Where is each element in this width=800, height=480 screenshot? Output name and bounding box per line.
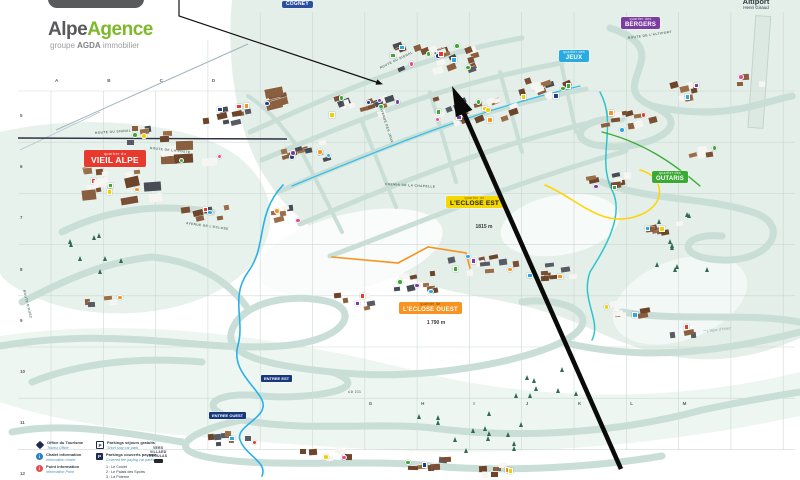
district-prefix: quartier des <box>625 18 656 22</box>
building <box>429 271 435 277</box>
building <box>127 140 134 145</box>
tree-icon <box>98 269 102 274</box>
tourist-office-icon <box>36 441 44 449</box>
legend-en: Short stay car park <box>107 446 155 450</box>
poi-marker <box>619 127 625 133</box>
district-label-cogney: COGNEY <box>282 1 313 8</box>
poi-marker <box>399 45 405 51</box>
tree-icon <box>486 436 490 441</box>
poi-marker <box>422 462 428 468</box>
building <box>484 269 494 274</box>
poi-marker <box>612 185 618 191</box>
building <box>491 472 498 477</box>
poi-marker <box>426 51 432 57</box>
poi-marker <box>323 454 329 460</box>
poi-marker <box>456 115 462 121</box>
tree-icon <box>525 375 529 380</box>
grid-number: 12 <box>20 471 25 476</box>
poi-marker <box>395 99 401 105</box>
building <box>482 472 488 478</box>
poi-marker <box>436 109 442 115</box>
tree-icon <box>97 233 101 238</box>
building <box>621 110 627 115</box>
tree-icon <box>103 256 107 261</box>
grid-number: 9 <box>20 318 23 323</box>
poi-marker <box>465 254 471 260</box>
altiport-subname: Henri Giraud <box>726 6 786 11</box>
tree-icon <box>453 437 457 442</box>
building <box>399 273 409 278</box>
parking-open-icon: P <box>96 441 104 449</box>
building <box>83 167 92 174</box>
tree-icon <box>119 258 123 263</box>
building <box>244 108 251 114</box>
poi-marker <box>203 207 209 213</box>
grid-number: 8 <box>20 267 23 272</box>
district-prefix: quartier du <box>91 152 139 156</box>
poi-marker <box>527 273 533 279</box>
building <box>561 266 570 273</box>
district-label-eclose-ouest: quartier de L'ECLOSE OUEST <box>399 302 462 314</box>
tree-icon <box>512 446 516 451</box>
tree-icon <box>512 441 516 446</box>
map-legend-parkings: P Parkings séjours gratuits Short stay c… <box>96 441 157 480</box>
tree-icon <box>574 391 578 396</box>
building <box>202 118 209 125</box>
legend-en: Covered fee paying car parks <box>106 458 157 462</box>
poi-marker <box>217 107 223 113</box>
district-label-vieil-alpe: quartier du VIEIL ALPE <box>84 150 146 167</box>
poi-marker <box>355 301 361 307</box>
poi-marker <box>566 83 572 89</box>
district-prefix: quartier de <box>403 303 458 307</box>
building <box>300 449 306 455</box>
grid-letter: L <box>630 401 633 406</box>
brand-name-part1: Alpe <box>48 19 87 40</box>
poi-marker <box>521 94 527 100</box>
building <box>160 136 169 143</box>
poi-marker <box>641 112 647 118</box>
poi-marker <box>659 226 665 232</box>
building <box>610 117 619 122</box>
poi-marker <box>553 93 559 99</box>
brand-tagline-post: immobilier <box>101 41 140 50</box>
poi-marker <box>593 184 599 190</box>
building <box>431 464 440 470</box>
poi-marker <box>397 279 403 285</box>
poi-marker <box>134 187 140 193</box>
info-chalet-icon: i <box>36 453 43 460</box>
district-name: BERGERS <box>625 22 656 28</box>
brand-logo: AlpeAgence <box>48 19 153 41</box>
legend-item-covered-parking: P Parkings couverts payants Covered fee … <box>96 453 157 462</box>
label-entree-est: ENTREE EST <box>261 375 292 382</box>
poi-marker <box>107 189 113 195</box>
building <box>82 190 97 201</box>
poi-marker <box>685 94 691 100</box>
brand-box <box>48 0 144 8</box>
poi-marker <box>485 107 491 113</box>
poi-marker <box>317 149 323 155</box>
district-label-jeux: quartier des JEUX <box>559 50 589 62</box>
district-label-outaris: quartier des OUTARIS <box>652 171 688 183</box>
building <box>670 332 676 339</box>
building <box>214 434 222 440</box>
poi-marker <box>244 103 250 109</box>
building <box>759 82 765 87</box>
tree-icon <box>483 426 487 431</box>
district-prefix: quartier des <box>563 51 585 55</box>
grid-letter: M <box>683 401 687 406</box>
poi-marker <box>738 74 744 80</box>
poi-marker <box>132 132 138 138</box>
grid-letter: J <box>526 401 529 406</box>
building <box>280 210 287 216</box>
grid-letter: I <box>473 401 474 406</box>
poi-marker <box>508 468 514 474</box>
grid-number: 5 <box>20 113 23 118</box>
building <box>110 299 117 304</box>
building <box>181 206 191 213</box>
building <box>440 457 450 463</box>
district-prefix: quartier des <box>656 172 684 176</box>
poi-marker <box>339 95 345 101</box>
legend-item-tourist-office: Office du Tourisme Tourist Office <box>36 441 83 450</box>
building <box>308 449 317 456</box>
grid-letter: H <box>421 401 424 406</box>
poi-marker <box>438 51 444 57</box>
tree-icon <box>534 386 538 391</box>
tree-icon <box>655 262 659 267</box>
grid-letter: D <box>212 78 215 83</box>
tree-icon <box>685 212 689 217</box>
divider-line <box>18 138 287 139</box>
district-name: OUTARIS <box>656 176 684 182</box>
grid-letter: K <box>578 401 581 406</box>
tree-icon <box>670 243 674 248</box>
poi-marker <box>141 133 147 139</box>
district-name: VIEIL ALPE <box>91 156 139 165</box>
grid-letter: C <box>160 78 163 83</box>
poi-marker <box>632 312 638 318</box>
legend-item-free-parking: P Parkings séjours gratuits Short stay c… <box>96 441 157 450</box>
building <box>245 436 251 441</box>
parking-list: 1 : Le Coulet 2 : Le Palais des Sports 3… <box>106 465 157 480</box>
resort-map-screenshot: ABCDGHIJKLM56789101112 ROUTE DU SIGNALRO… <box>0 0 800 480</box>
building <box>334 293 341 298</box>
poi-marker <box>487 117 493 123</box>
poi-marker <box>290 150 296 156</box>
road-label: CD 211 <box>348 390 361 394</box>
building <box>541 270 549 275</box>
label-entree-ouest: ENTREE OUEST <box>209 412 246 419</box>
tree-icon <box>673 267 677 272</box>
tree-icon <box>519 422 523 427</box>
tree-icon <box>436 420 440 425</box>
tree-icon <box>92 235 96 240</box>
legend-en: Information chalet <box>46 458 81 462</box>
tree-icon <box>532 378 536 383</box>
poi-marker <box>507 267 513 273</box>
legend-en: Information Point <box>46 470 79 474</box>
building <box>466 270 473 276</box>
tree-icon <box>464 448 468 453</box>
building <box>394 286 400 291</box>
building <box>737 81 743 85</box>
poi-marker <box>476 99 482 105</box>
building <box>88 302 95 307</box>
altitude-eclose-est: 1815 m <box>452 224 516 230</box>
poi-marker <box>229 436 235 442</box>
poi-marker <box>360 293 366 299</box>
poi-marker <box>557 274 563 280</box>
poi-marker <box>274 208 280 214</box>
building <box>216 441 222 445</box>
building <box>132 126 138 131</box>
legend-item-point-information: i Point information Information Point <box>36 465 83 474</box>
tree-icon <box>514 393 518 398</box>
parking-list-item: 3 : La Poterne <box>106 475 157 480</box>
grid-number: 10 <box>20 369 25 374</box>
district-name: COGNEY <box>286 2 309 7</box>
poi-marker <box>236 104 242 110</box>
district-prefix: quartier de <box>450 197 499 201</box>
map-legend: Office du Tourisme Tourist Office i Chal… <box>36 441 83 478</box>
building <box>541 275 549 281</box>
grid-number: 11 <box>20 420 25 425</box>
building <box>513 260 520 267</box>
tree-icon <box>69 242 73 247</box>
building <box>144 181 161 192</box>
tree-icon <box>528 393 532 398</box>
building <box>202 158 217 166</box>
poi-marker <box>604 304 610 310</box>
grid-letter: B <box>107 78 110 83</box>
tree-icon <box>487 431 491 436</box>
grid-letter: G <box>369 401 373 406</box>
tree-icon <box>78 256 82 261</box>
brand-tagline-pre: groupe <box>50 41 77 50</box>
poi-marker <box>694 83 700 89</box>
building <box>447 256 455 264</box>
tree-icon <box>471 428 475 433</box>
grid-letter: A <box>55 78 58 83</box>
building <box>706 151 714 157</box>
poi-marker <box>645 226 651 232</box>
poi-marker <box>414 283 420 289</box>
district-name: L'ECLOSE OUEST <box>403 307 458 313</box>
poi-marker <box>405 460 411 466</box>
district-name: JEUX <box>563 55 585 61</box>
altitude-eclose-ouest: 1 790 m <box>404 320 468 326</box>
building <box>102 171 109 176</box>
building <box>148 193 162 202</box>
tree-icon <box>487 411 491 416</box>
district-label-eclose-est: quartier de L'ECLOSE EST <box>446 196 503 208</box>
brand-name-part2: Agence <box>87 19 153 40</box>
district-name: L'ECLOSE EST <box>450 201 499 208</box>
tree-icon <box>436 415 440 420</box>
tree-icon <box>560 367 564 372</box>
tree-icon <box>556 388 560 393</box>
grid-number: 6 <box>20 164 23 169</box>
info-point-icon: i <box>36 465 43 472</box>
tree-icon <box>417 414 421 419</box>
brand-tagline-bold: AGDA <box>77 41 101 50</box>
tree-icon <box>506 432 510 437</box>
building <box>342 297 348 303</box>
building <box>408 466 418 470</box>
poi-marker <box>329 112 335 118</box>
building <box>480 261 490 266</box>
poi-marker <box>471 258 477 264</box>
district-label-bergers: quartier des BERGERS <box>621 17 660 29</box>
legend-en: Tourist Office <box>47 446 83 450</box>
tree-icon <box>705 267 709 272</box>
tree-icon <box>657 219 661 224</box>
poi-marker <box>108 183 114 189</box>
grid-number: 7 <box>20 215 23 220</box>
poi-marker <box>684 324 690 330</box>
poi-marker <box>608 110 614 116</box>
poi-marker <box>454 43 460 49</box>
legend-item-chalet-information: i Chalet information Information chalet <box>36 453 83 462</box>
poi-marker <box>409 61 415 67</box>
brand-tagline: groupe AGDA immobilier <box>50 41 139 50</box>
poi-marker <box>453 266 459 272</box>
parking-covered-icon: P <box>96 453 103 460</box>
poi-marker <box>451 57 457 63</box>
label-altiport: Altiport Henri Giraud <box>726 0 786 11</box>
